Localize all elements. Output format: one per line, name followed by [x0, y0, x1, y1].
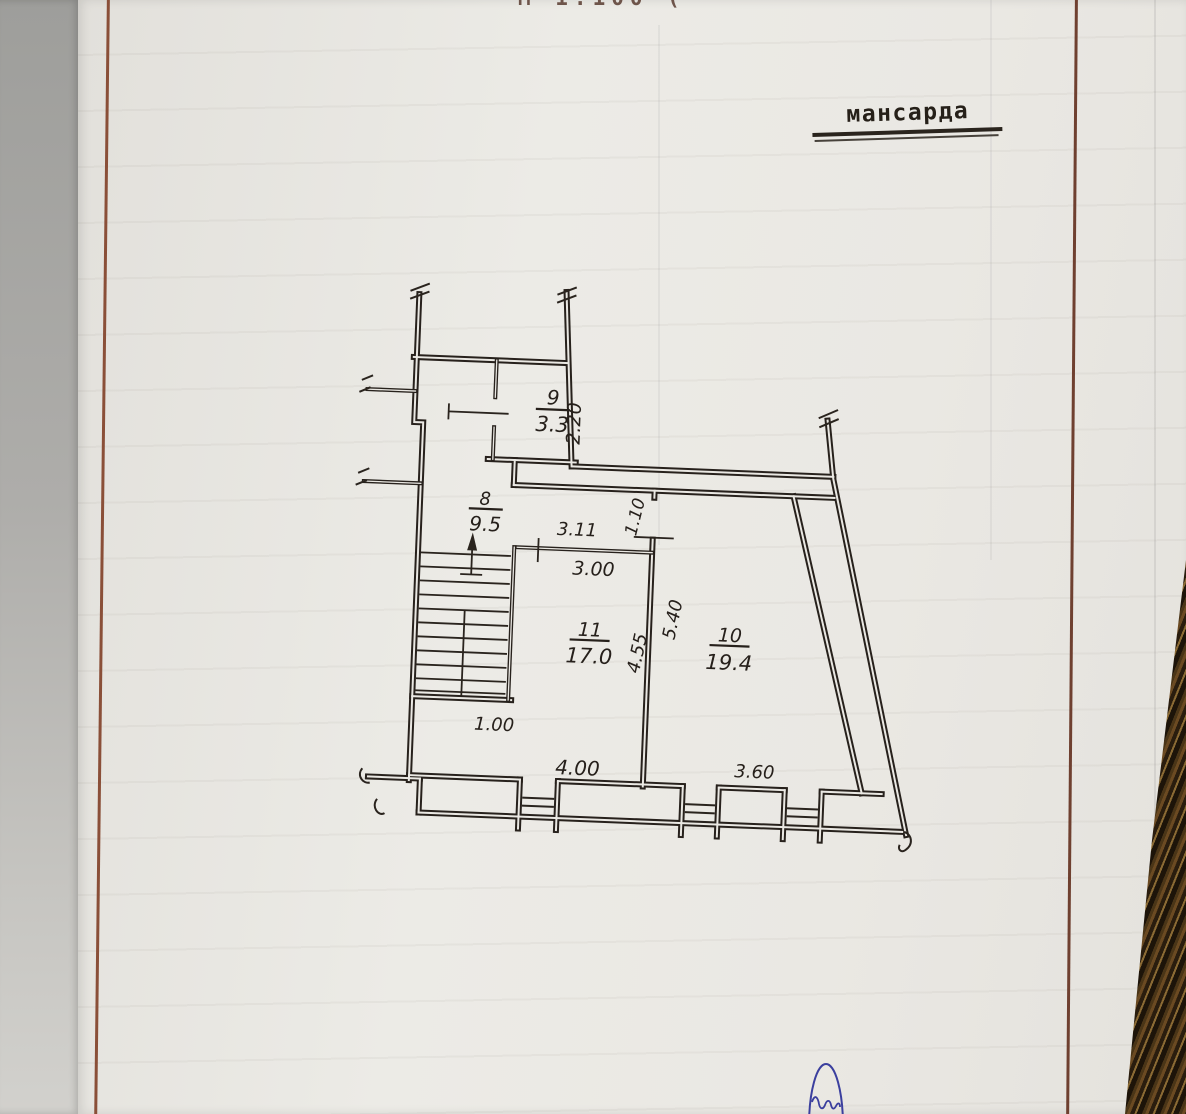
- room8-area: 9.5: [469, 511, 502, 536]
- paper-crease: [990, 0, 992, 560]
- blue-stamp-fragment: [784, 1040, 874, 1114]
- underlying-sheet-edge: [0, 0, 82, 1114]
- room8-number: 8: [479, 489, 491, 510]
- stamp-signature-squiggle: [812, 1097, 840, 1108]
- wall-break-marks: [342, 279, 933, 852]
- room10-number: 10: [717, 624, 742, 647]
- room9-number: 9: [546, 385, 560, 409]
- dim-room10-width: 3.60: [734, 761, 775, 784]
- room11-area: 17.0: [565, 643, 613, 669]
- walls: [350, 284, 927, 844]
- dim-stairs-width: 1.00: [474, 714, 515, 737]
- scale-note-cut-off: М 1:100 (: [518, 0, 686, 10]
- title-block: мансарда: [811, 97, 1004, 142]
- document-sheet: М 1:100 ( мансарда: [78, 0, 1186, 1114]
- fraction-bars: [464, 406, 759, 646]
- room11-number: 11: [577, 619, 602, 642]
- room9-height-dim: 2.20: [562, 402, 586, 445]
- dim-door: 1.10: [621, 496, 650, 538]
- dim-room11-width: 4.00: [555, 755, 600, 781]
- paper-edge-fold: [1154, 0, 1156, 1114]
- page-title: мансарда: [811, 97, 1004, 129]
- dim-hall-top: 3.11: [557, 519, 598, 542]
- photo-of-floor-plan-document: М 1:100 ( мансарда: [0, 0, 1186, 1114]
- dim-room10-depth: 5.40: [659, 598, 688, 642]
- stamp-oval: [809, 1064, 843, 1114]
- room-labels: 9 3.3 2.20 8 9.5 11 17.0 10 19.4: [464, 382, 763, 675]
- stairs: [415, 534, 511, 697]
- floor-plan-drawing: 9 3.3 2.20 8 9.5 11 17.0 10 19.4 3.11 3.…: [338, 270, 982, 894]
- dim-room11-top: 3.00: [572, 557, 615, 581]
- room10-area: 19.4: [705, 650, 753, 676]
- window-glazing: [522, 798, 818, 818]
